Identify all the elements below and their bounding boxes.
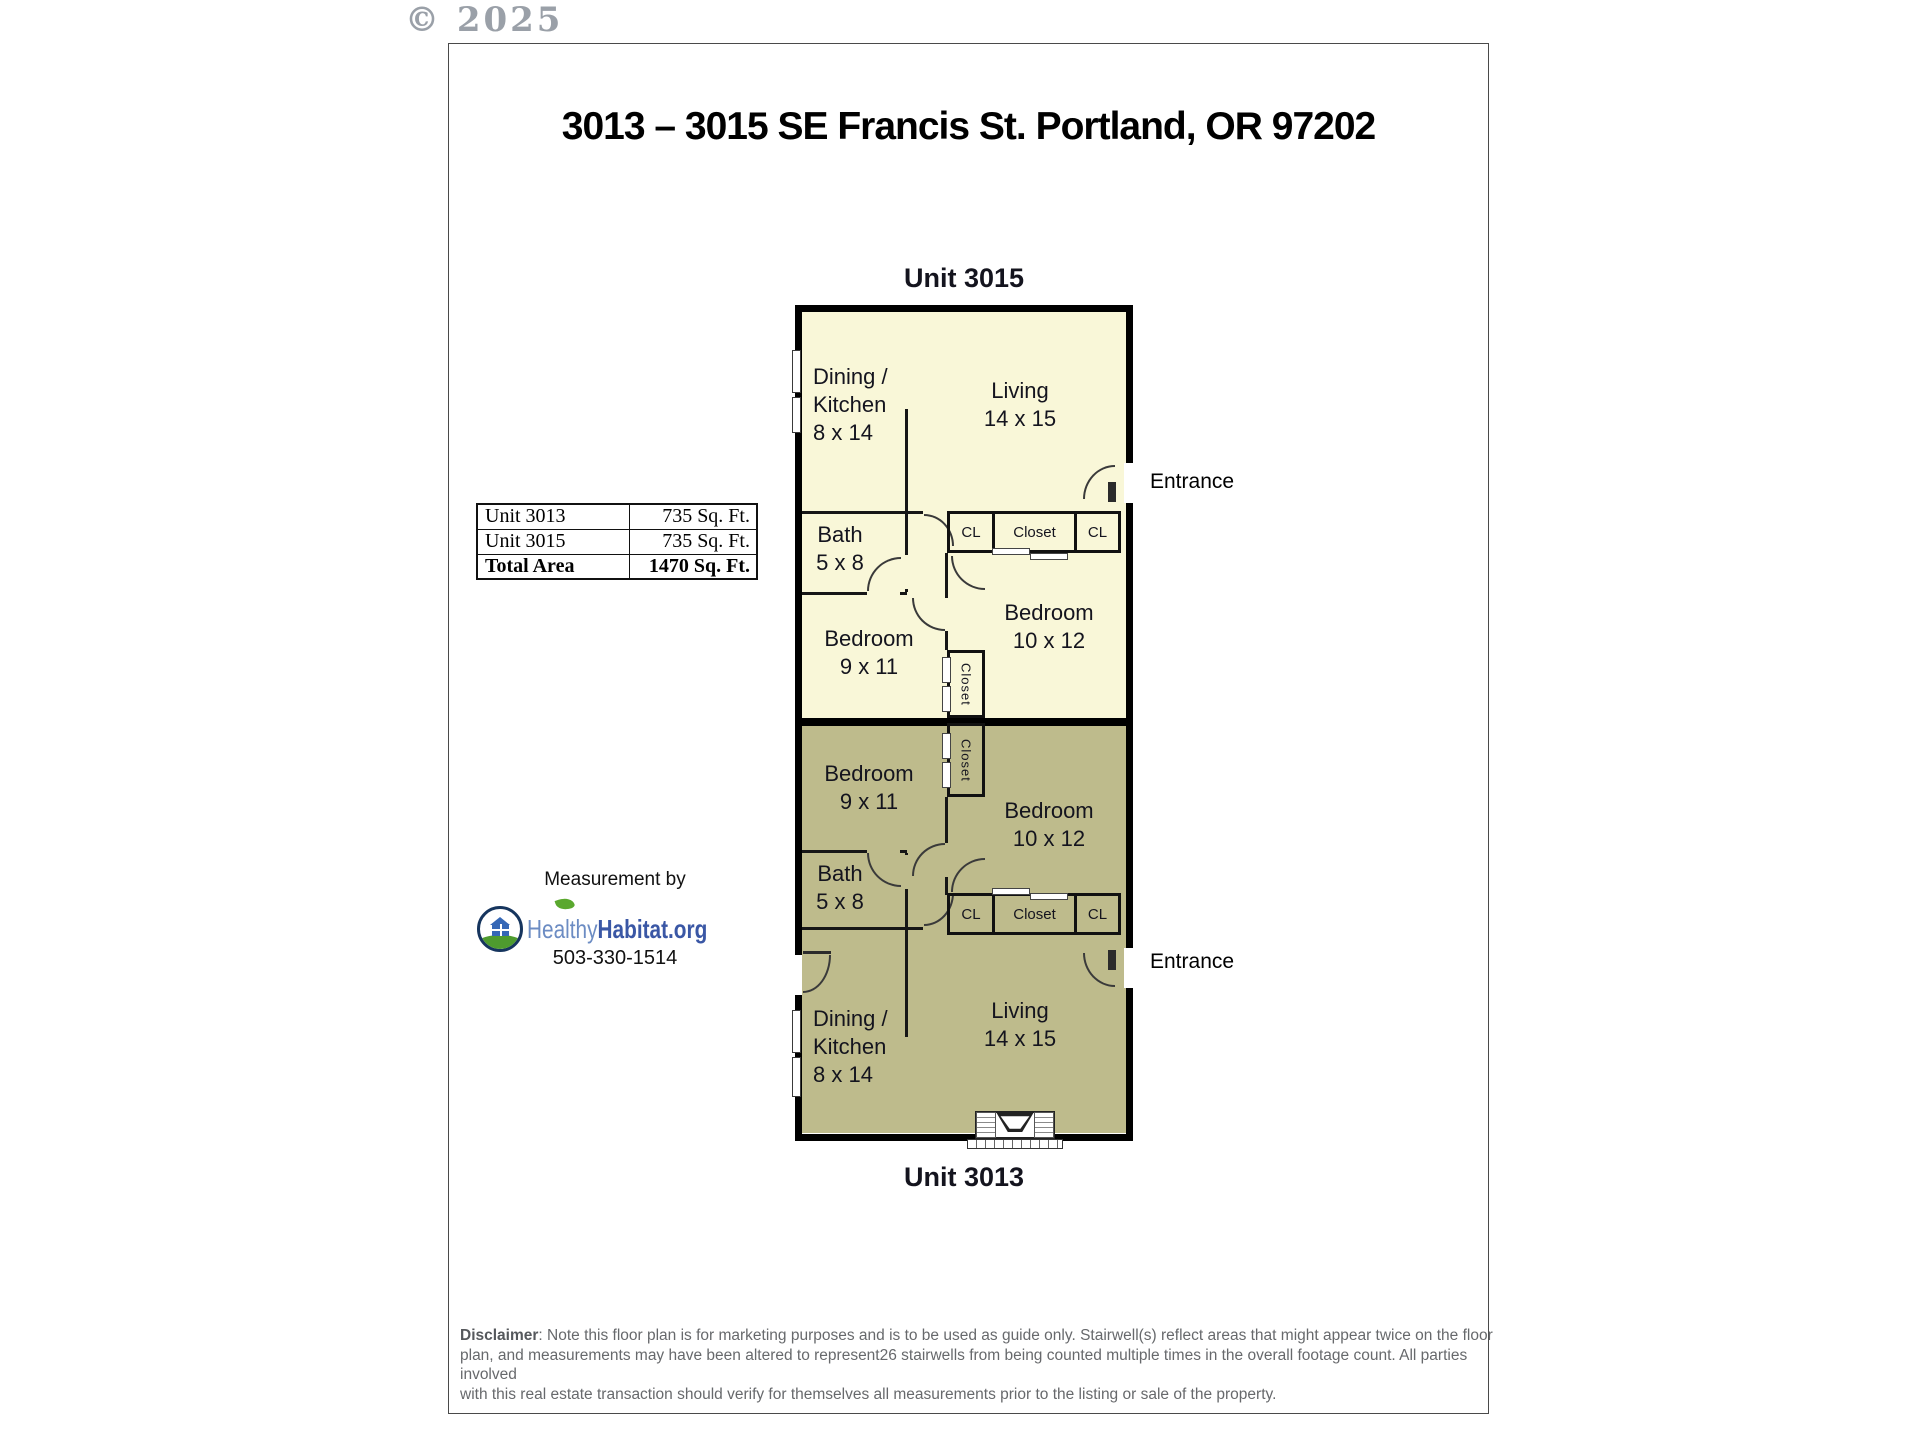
page-title: 3013 – 3015 SE Francis St. Portland, OR … — [448, 105, 1489, 149]
credit-phone: 503-330-1514 — [465, 947, 765, 970]
closet-cl-left-3015: CL — [950, 514, 992, 550]
room-bedroom-small-3013: Bedroom 9 x 11 — [803, 760, 935, 816]
closet-door-strip-2-3015 — [1030, 553, 1068, 560]
room-living-3015: Living 14 x 15 — [945, 377, 1095, 433]
wall-dining-top-3013 — [802, 927, 923, 930]
floor-plan: CL Closet CL Closet Dining / Kitchen 8 x… — [795, 305, 1133, 1141]
closet-vert-door-2-3015 — [942, 686, 951, 712]
closet-door-strip-1-3015 — [992, 548, 1030, 555]
side-door-opening-3013 — [795, 955, 802, 995]
closet-row-3015: CL Closet CL — [947, 511, 1121, 553]
fireplace-brick-left — [976, 1112, 996, 1138]
entrance-opening-3015 — [1124, 463, 1135, 503]
room-dining-3013: Dining / Kitchen 8 x 14 — [813, 1005, 913, 1089]
closet-vertical-3013: Closet — [947, 723, 985, 797]
area-row-label: Unit 3013 — [477, 504, 629, 529]
room-bath-3013: Bath 5 x 8 — [805, 860, 875, 916]
area-total-label: Total Area — [477, 554, 629, 579]
door-gap-bath-hall-3013 — [905, 855, 908, 889]
room-dining-3015: Dining / Kitchen 8 x 14 — [813, 363, 913, 447]
area-row-value: 735 Sq. Ft. — [629, 504, 757, 529]
table-row: Unit 3013 735 Sq. Ft. — [477, 504, 757, 529]
logo-healthy-text: Healthy — [527, 914, 598, 944]
window-3015-a — [792, 350, 801, 393]
table-row-total: Total Area 1470 Sq. Ft. — [477, 554, 757, 579]
side-door-leaf-3013 — [803, 951, 831, 954]
area-row-value: 735 Sq. Ft. — [629, 529, 757, 554]
closet-vert-door-2-3013 — [942, 762, 951, 788]
closet-main-3013: Closet — [992, 896, 1074, 932]
table-row: Unit 3015 735 Sq. Ft. — [477, 529, 757, 554]
floor-plan-page: © 2025 3013 – 3015 SE Francis St. Portla… — [0, 0, 1920, 1440]
room-bedroom-large-3015: Bedroom 10 x 12 — [978, 599, 1120, 655]
area-total-value: 1470 Sq. Ft. — [629, 554, 757, 579]
wall-bedroom-divider-a-3013 — [945, 797, 948, 843]
closet-cl-right-3013: CL — [1074, 896, 1118, 932]
wall-bedroom-divider-a-3015 — [945, 553, 948, 598]
window-3015-b — [792, 397, 801, 433]
fireplace-base — [967, 1139, 1063, 1149]
credit-heading: Measurement by — [465, 869, 765, 891]
wall-top — [795, 305, 1133, 312]
room-bedroom-large-3013: Bedroom 10 x 12 — [978, 797, 1120, 853]
logo-habitat-text: Habitat.org — [598, 914, 708, 944]
closet-vertical-3015: Closet — [947, 650, 985, 718]
door-gap-bath-hall-3015 — [905, 555, 908, 589]
door-gap-bath-3015 — [867, 592, 900, 595]
unit-3013-label: Unit 3013 — [795, 1162, 1133, 1193]
wall-bottom — [795, 1134, 1133, 1141]
disclaimer-text: Disclaimer: Note this floor plan is for … — [460, 1326, 1497, 1405]
healthyhabitat-logo: HealthyHabitat.org — [465, 906, 765, 952]
closet-cl-right-3015: CL — [1074, 514, 1118, 550]
closet-door-strip-1-3013 — [992, 888, 1030, 895]
area-row-label: Unit 3015 — [477, 529, 629, 554]
wall-bedroom-divider-b-3015 — [945, 631, 948, 650]
room-bedroom-small-3015: Bedroom 9 x 11 — [803, 625, 935, 681]
closet-cl-left-3013: CL — [950, 896, 992, 932]
entrance-opening-3013 — [1124, 948, 1135, 988]
closet-main-3015: Closet — [992, 514, 1074, 550]
entrance-label-3013: Entrance — [1150, 950, 1234, 974]
entrance-label-3015: Entrance — [1150, 470, 1234, 494]
logo-globe-house-icon — [477, 906, 523, 952]
fireplace-brick-right — [1034, 1112, 1054, 1138]
logo-wordmark: HealthyHabitat.org — [527, 914, 707, 945]
area-table: Unit 3013 735 Sq. Ft. Unit 3015 735 Sq. … — [476, 503, 758, 580]
closet-door-strip-2-3013 — [1030, 893, 1068, 900]
unit-3015-label: Unit 3015 — [795, 263, 1133, 294]
room-living-3013: Living 14 x 15 — [945, 997, 1095, 1053]
disclaimer-label: Disclaimer — [460, 1327, 538, 1344]
closet-vert-door-1-3013 — [942, 733, 951, 759]
window-3013-a — [792, 1010, 801, 1053]
closet-vert-door-1-3015 — [942, 657, 951, 683]
copyright-notice: © 2025 — [405, 0, 563, 40]
wall-dining-bottom-3015 — [802, 511, 923, 514]
room-bath-3015: Bath 5 x 8 — [805, 521, 875, 577]
window-3013-b — [792, 1057, 801, 1097]
